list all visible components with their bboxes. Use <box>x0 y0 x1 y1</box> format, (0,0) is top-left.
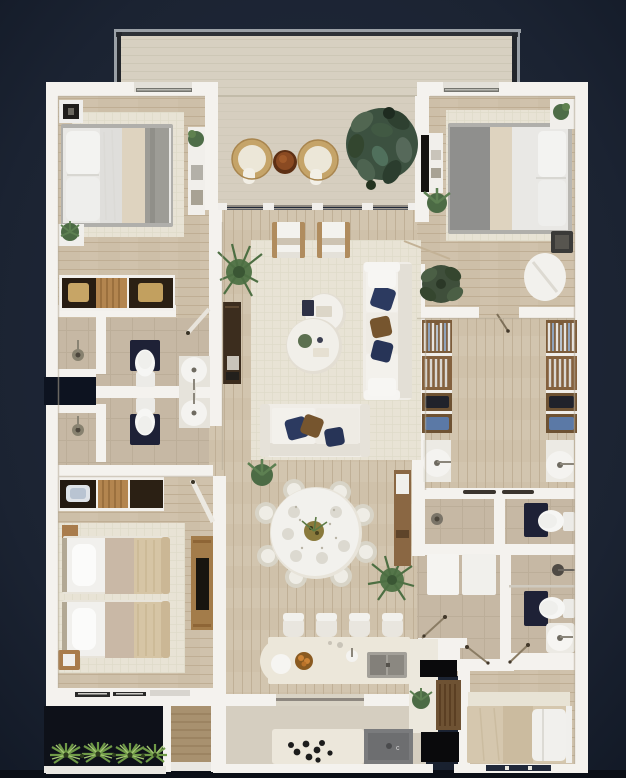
svg-text:c: c <box>396 745 400 752</box>
